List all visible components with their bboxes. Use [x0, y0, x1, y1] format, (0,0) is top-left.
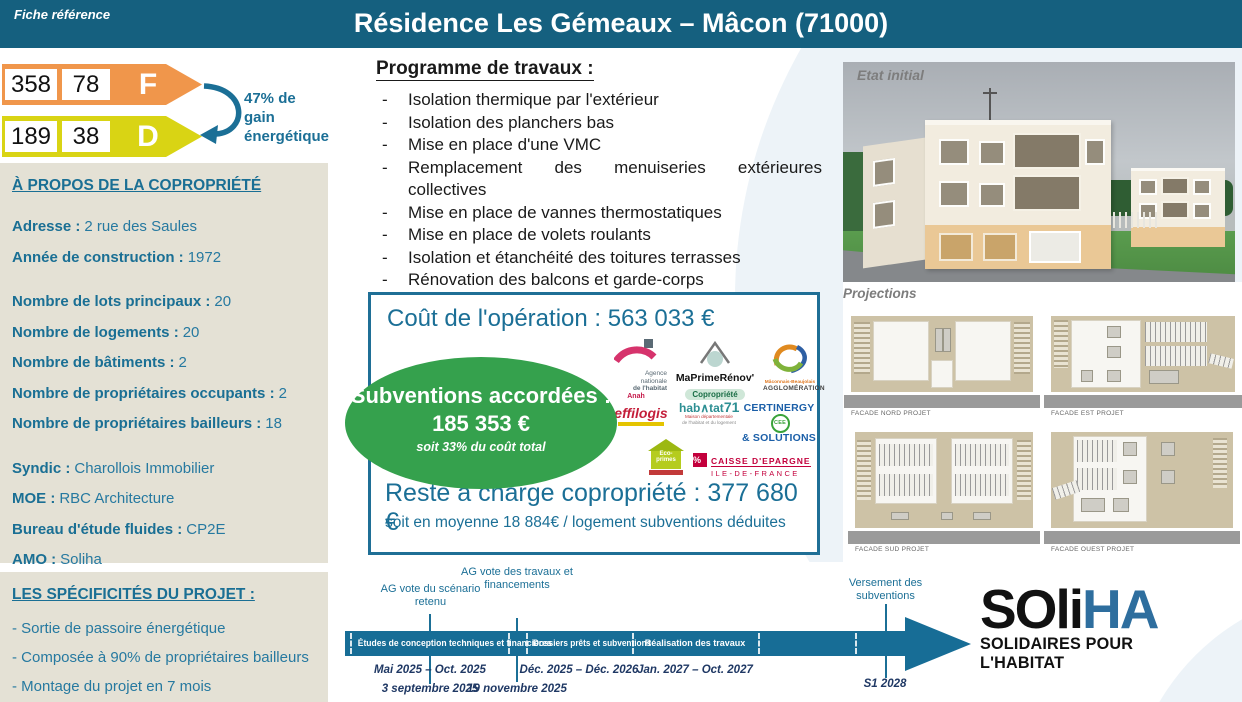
habitat71-number: 71 — [724, 399, 740, 415]
fiche-reference-page: Fiche référence Résidence Les Gémeaux – … — [0, 0, 1242, 702]
field-annee: Année de construction :1972 — [12, 248, 318, 267]
subsidies-note: soit 33% du coût total — [345, 440, 617, 454]
elevation-caption: FACADE OUEST PROJET — [1051, 546, 1233, 553]
field-bet: Bureau d'étude fluides :CP2E — [12, 520, 318, 539]
specific-item: - Sortie de passoire énergétique — [12, 620, 318, 637]
energy-after-kwh: 189 — [5, 121, 57, 152]
spacer — [12, 278, 318, 292]
habitat71-logo: hab∧tat71 Maison départementale de l'hab… — [679, 401, 739, 425]
work-item: Isolation des planchers bas — [376, 112, 822, 135]
work-item: Mise en place d'une VMC — [376, 134, 822, 157]
field-amo: AMO :Soliha — [12, 550, 318, 569]
subsidies-label: Subventions accordées : — [345, 383, 617, 409]
caisse-epargne-icon: % — [693, 453, 707, 467]
milestone-date: 19 novembre 2025 — [455, 683, 579, 695]
elevation-caption: FACADE NORD PROJET — [851, 410, 1033, 417]
stair-railing — [1113, 212, 1157, 228]
photo-label: Etat initial — [857, 67, 924, 83]
agglo-swirl-icon — [769, 339, 811, 375]
field-bailleurs: Nombre de propriétaires bailleurs :18 — [12, 414, 318, 433]
phase-label: Dossiers prêts et subventions — [533, 631, 625, 656]
subsidies-amount: 185 353 € — [345, 411, 617, 437]
eco-primes-name: Eco-primes — [651, 451, 681, 463]
elevation-caption: FACADE SUD PROJET — [855, 546, 1033, 553]
energy-gain-label: 47% de gain énergétique — [244, 90, 330, 146]
milestone-label: AG vote des travaux et financements — [458, 566, 576, 592]
elevation-west: FACADE OUEST PROJET — [1051, 432, 1233, 553]
agglomeration-logo: Mâconnais-Beaujolais AGGLOMÉRATION — [763, 339, 817, 392]
caisse-epargne-region: ILE-DE-FRANCE — [711, 469, 817, 478]
specific-item: - Montage du projet en 7 mois — [12, 678, 318, 695]
energy-after-co2: 38 — [62, 121, 110, 152]
elevation-caption: FACADE EST PROJET — [1051, 410, 1235, 417]
anah-swoosh-icon — [614, 339, 658, 365]
about-title: À PROPOS DE LA COPROPRIÉTÉ — [12, 177, 318, 195]
operation-cost: Coût de l'opération : 563 033 € — [387, 305, 715, 333]
phase-label: Réalisation des travaux — [635, 631, 755, 656]
field-logements: Nombre de logements :20 — [12, 323, 318, 342]
caisse-epargne-logo: %CAISSE D'EPARGNE ILE-DE-FRANCE — [693, 451, 817, 478]
field-batiments: Nombre de bâtiments :2 — [12, 353, 318, 372]
phase-period: Mai 2025 – Oct. 2025 — [360, 664, 500, 676]
field-occupants: Nombre de propriétaires occupants :2 — [12, 384, 318, 403]
certinergy-subname: & SOLUTIONS — [741, 433, 817, 444]
work-item: Isolation thermique par l'extérieur — [376, 89, 822, 112]
energy-after-letter: D — [118, 116, 178, 157]
work-item: Isolation et étanchéité des toitures ter… — [376, 247, 822, 270]
header-band: Fiche référence Résidence Les Gémeaux – … — [0, 0, 1242, 48]
projections-label: Projections — [843, 286, 917, 301]
initial-state-photo: Etat initial — [843, 62, 1235, 283]
remaining-cost-note: soit en moyenne 18 884€ / logement subve… — [385, 514, 786, 532]
eco-primes-logo: Eco-primes — [643, 439, 689, 475]
specifics-panel: LES SPÉCIFICITÉS DU PROJET : - Sortie de… — [0, 572, 328, 702]
energy-before-kwh: 358 — [5, 69, 57, 100]
effilogis-name: effilogis — [609, 405, 673, 421]
elevation-south: FACADE SUD PROJET — [855, 432, 1033, 553]
projections-panel: Projections FACADE NORD PROJET — [843, 282, 1242, 562]
work-item: Remplacement des menuiseries extérieures… — [376, 157, 822, 202]
works-section: Programme de travaux : Isolation thermiq… — [376, 58, 822, 292]
agglo-subname: AGGLOMÉRATION — [763, 385, 817, 392]
phase-label: Études de conception techniques et finan… — [358, 631, 501, 656]
habitat71-sub1: Maison départementale — [679, 414, 739, 420]
soliha-logo: SOliHA SOLIDAIRES POUR L'HABITAT — [980, 580, 1216, 673]
building-left-side — [863, 138, 925, 269]
field-syndic: Syndic :Charollois Immobilier — [12, 459, 318, 478]
effilogis-logo: effilogis — [609, 405, 673, 426]
building-left-front — [925, 120, 1111, 269]
milestone-label: Versement des subventions — [818, 577, 953, 603]
house-icon — [695, 337, 735, 367]
phase-period: Jan. 2027 – Oct. 2027 — [625, 664, 765, 676]
work-item: Mise en place de volets roulants — [376, 224, 822, 247]
energy-before-letter: F — [118, 64, 178, 105]
soliha-word-black: SOli — [980, 578, 1082, 640]
energy-before-co2: 78 — [62, 69, 110, 100]
certinergy-logo: CERTINERGYCEE & SOLUTIONS — [741, 403, 817, 444]
field-moe: MOE :RBC Architecture — [12, 489, 318, 508]
roof-icon: ∧ — [700, 401, 709, 415]
specifics-title: LES SPÉCIFICITÉS DU PROJET : — [12, 586, 318, 604]
maprimerenov-name: MaPrimeRénov' — [671, 372, 759, 384]
eco-house-icon — [648, 439, 684, 451]
about-panel: À PROPOS DE LA COPROPRIÉTÉ Adresse :2 ru… — [0, 163, 328, 563]
caisse-epargne-name: CAISSE D'EPARGNE — [711, 456, 811, 467]
elevation-east: FACADE EST PROJET — [1051, 316, 1235, 417]
page-title: Résidence Les Gémeaux – Mâcon (71000) — [0, 8, 1242, 39]
spacer — [12, 445, 318, 459]
anah-line1: Agence — [605, 370, 667, 378]
specific-item: - Composée à 90% de propriétaires baille… — [12, 649, 318, 666]
timeline-arrowhead — [905, 617, 971, 671]
cee-badge: CEE — [771, 414, 790, 433]
habitat71-sub2: de l'habitat et du logement — [679, 420, 739, 426]
elevation-north: FACADE NORD PROJET — [851, 316, 1033, 417]
field-adresse: Adresse :2 rue des Saules — [12, 217, 318, 236]
milestone-date: S1 2028 — [845, 678, 925, 690]
certinergy-name: CERTINERGY — [744, 402, 815, 414]
works-title: Programme de travaux : — [376, 58, 594, 81]
timeline-arrow-band: Études de conception techniques et finan… — [345, 631, 905, 656]
field-lots: Nombre de lots principaux :20 — [12, 292, 318, 311]
soliha-word-blue: HA — [1082, 578, 1157, 640]
work-item: Rénovation des balcons et garde-corps — [376, 269, 822, 292]
work-item: Mise en place de vannes thermostatiques — [376, 202, 822, 225]
cost-box: Coût de l'opération : 563 033 € Subventi… — [368, 292, 820, 555]
subsidies-ellipse: Subventions accordées : 185 353 € soit 3… — [345, 357, 617, 489]
maprimerenov-logo: MaPrimeRénov' Copropriété — [671, 337, 759, 402]
soliha-tagline: SOLIDAIRES POUR L'HABITAT — [980, 635, 1216, 673]
building-right — [1131, 168, 1225, 247]
